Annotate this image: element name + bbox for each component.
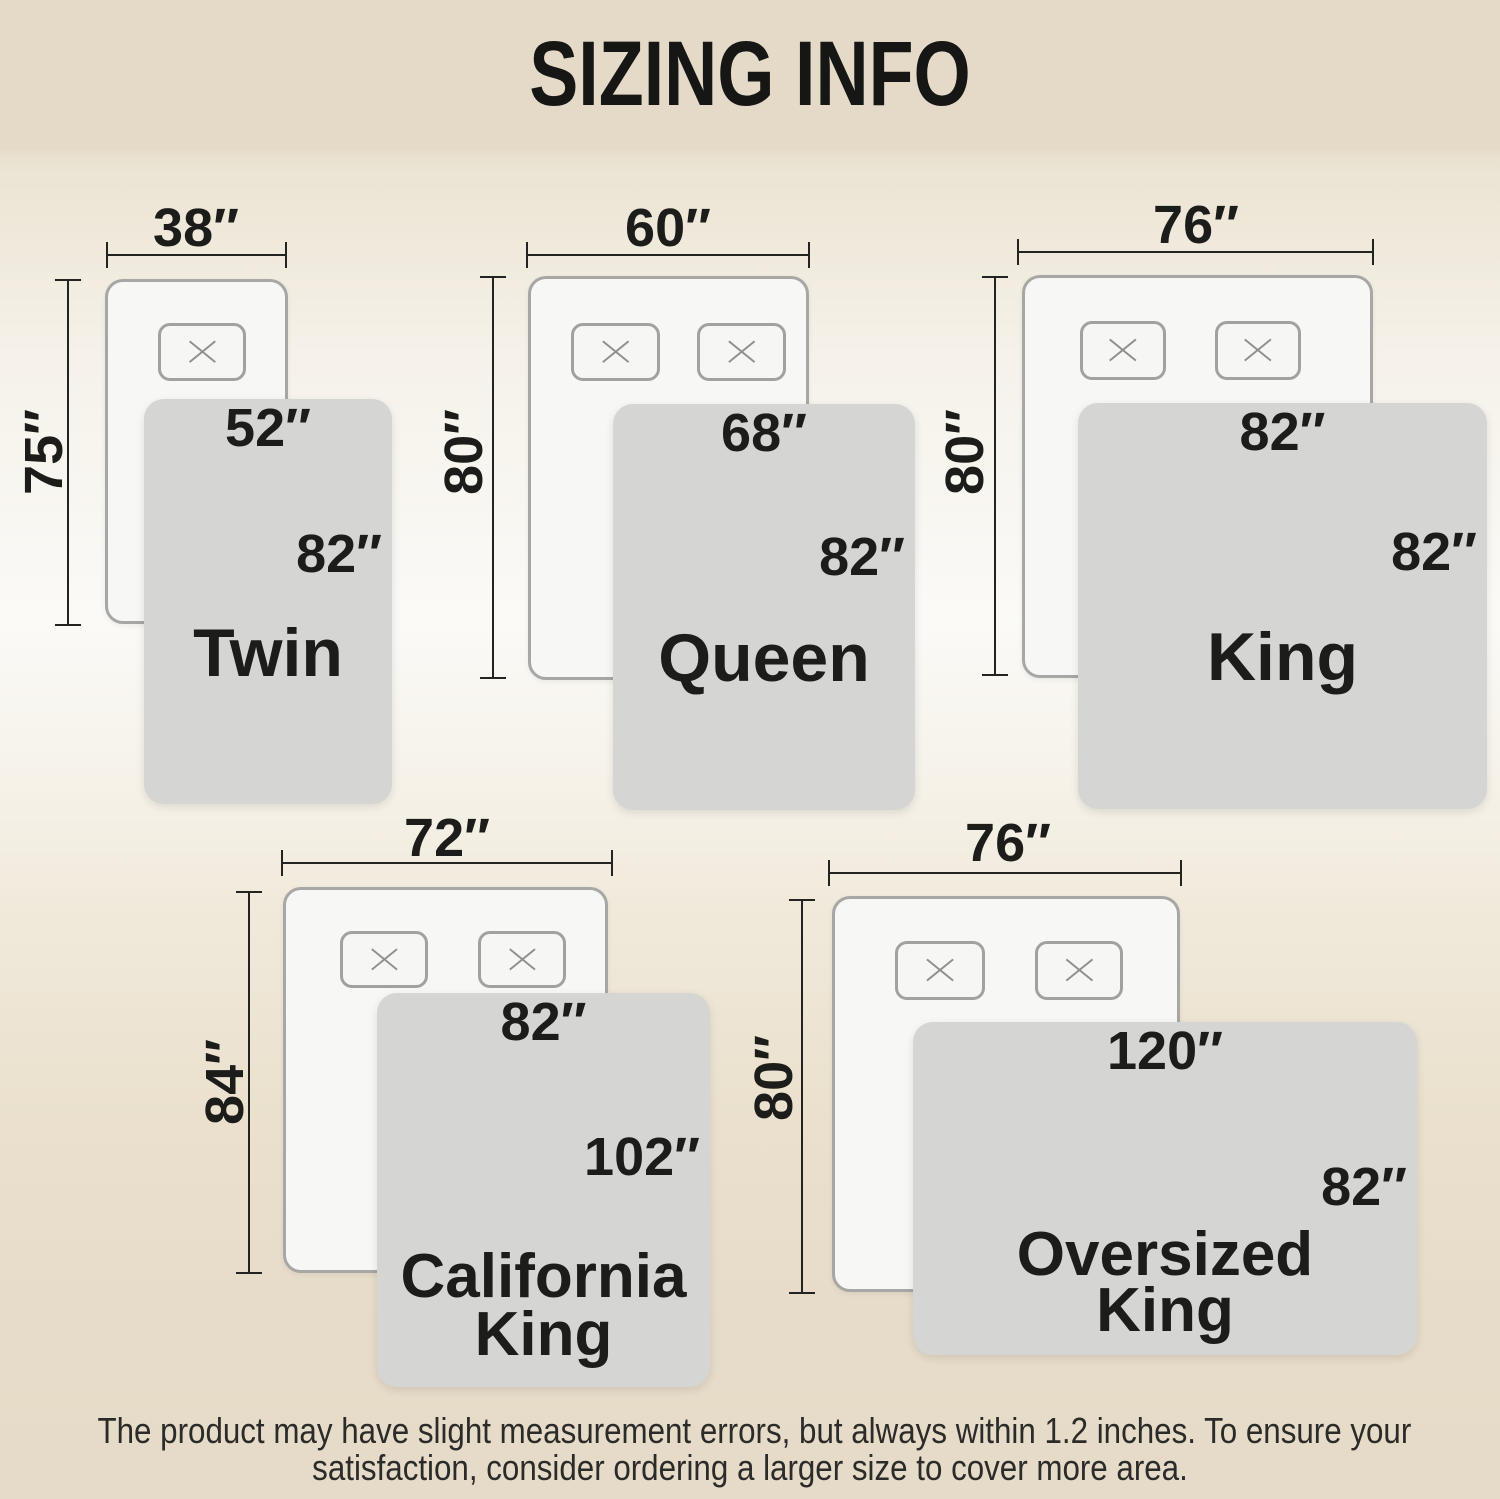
x-icon [359,942,410,977]
width-dimension-line [107,254,286,256]
mattress-width-label: 60″ [625,201,711,255]
blanket-width-label: 120″ [913,1024,1417,1078]
bed-size-name-line: Oversized [913,1227,1417,1283]
width-dimension-line [1018,251,1373,253]
mattress-width-label: 38″ [153,201,239,255]
pillow-icon [571,323,660,381]
disclaimer-line: The product may have slight measurement … [98,1412,1403,1449]
blanket-length-label: 82″ [1391,525,1477,579]
blanket-length-label: 82″ [296,527,382,581]
tick [526,242,528,268]
tick [55,279,81,281]
length-dimension-line [67,280,69,625]
bed-size-name-line: King [377,1306,710,1364]
mattress-length-label: 80″ [747,1035,801,1121]
tick [285,242,287,268]
mattress-length-label: 84″ [198,1039,252,1125]
blanket-shape: 82″ 102″ California King [377,993,710,1387]
bed-size-name: Twin [144,619,392,687]
blanket-length-label: 102″ [584,1130,700,1184]
page-title: SIZING INFO [529,0,971,148]
mattress-length-label: 80″ [938,409,992,495]
blanket-width-label: 82″ [1078,405,1487,459]
bed-size-name: Queen [613,624,915,692]
x-icon [590,334,641,369]
header-band: SIZING INFO [0,0,1500,148]
pillow-icon [158,323,246,381]
bed-size-name: California King [377,1248,710,1364]
tick [106,242,108,268]
tick [808,242,810,268]
tick [236,891,262,893]
tick [789,1292,815,1294]
x-icon [914,952,966,988]
length-dimension-line [492,277,494,678]
width-dimension-line [829,872,1181,874]
tick [55,624,81,626]
tick [828,860,830,886]
length-dimension-line [994,277,996,675]
tick [611,850,613,876]
mattress-length-label: 80″ [437,409,491,495]
bed-size-name-line: King [913,1283,1417,1339]
pillow-icon [478,931,566,988]
sizing-infographic: SIZING INFO 38″ 75″ 52″ 82″ Twin 60″ 80″ [0,0,1500,1499]
disclaimer-line: satisfaction, consider ordering a larger… [98,1449,1403,1486]
tick [789,899,815,901]
x-icon [1233,332,1283,368]
pillow-icon [1215,321,1301,380]
x-icon [497,942,548,977]
tick [982,674,1008,676]
tick [982,276,1008,278]
bed-size-name: King [1078,623,1487,691]
blanket-length-label: 82″ [1321,1160,1407,1214]
blanket-length-label: 82″ [819,530,905,584]
mattress-length-label: 75″ [17,409,71,495]
length-dimension-line [248,892,250,1273]
bed-size-name-line: California [377,1248,710,1306]
mattress-width-label: 76″ [965,816,1051,870]
length-dimension-line [801,900,803,1293]
blanket-shape: 82″ 82″ King [1078,403,1487,809]
blanket-shape: 120″ 82″ Oversized King [913,1022,1417,1355]
x-icon [1098,332,1148,368]
blanket-width-label: 52″ [144,401,392,455]
width-dimension-line [282,862,612,864]
pillow-icon [697,323,786,381]
tick [480,677,506,679]
tick [1180,860,1182,886]
tick [281,850,283,876]
pillow-icon [1080,321,1166,380]
x-icon [716,334,767,369]
pillow-icon [1035,941,1123,1000]
disclaimer: The product may have slight measurement … [98,1412,1403,1486]
mattress-width-label: 76″ [1153,198,1239,252]
blanket-width-label: 68″ [613,406,915,460]
x-icon [1054,952,1105,988]
blanket-shape: 52″ 82″ Twin [144,399,392,804]
tick [1017,239,1019,265]
blanket-shape: 68″ 82″ Queen [613,404,915,810]
bed-size-name: Oversized King [913,1227,1417,1339]
pillow-icon [895,941,985,1000]
x-icon [177,334,228,369]
tick [480,276,506,278]
mattress-width-label: 72″ [404,811,490,865]
tick [1372,239,1374,265]
blanket-width-label: 82″ [377,995,710,1049]
width-dimension-line [527,254,809,256]
pillow-icon [340,931,428,988]
tick [236,1272,262,1274]
